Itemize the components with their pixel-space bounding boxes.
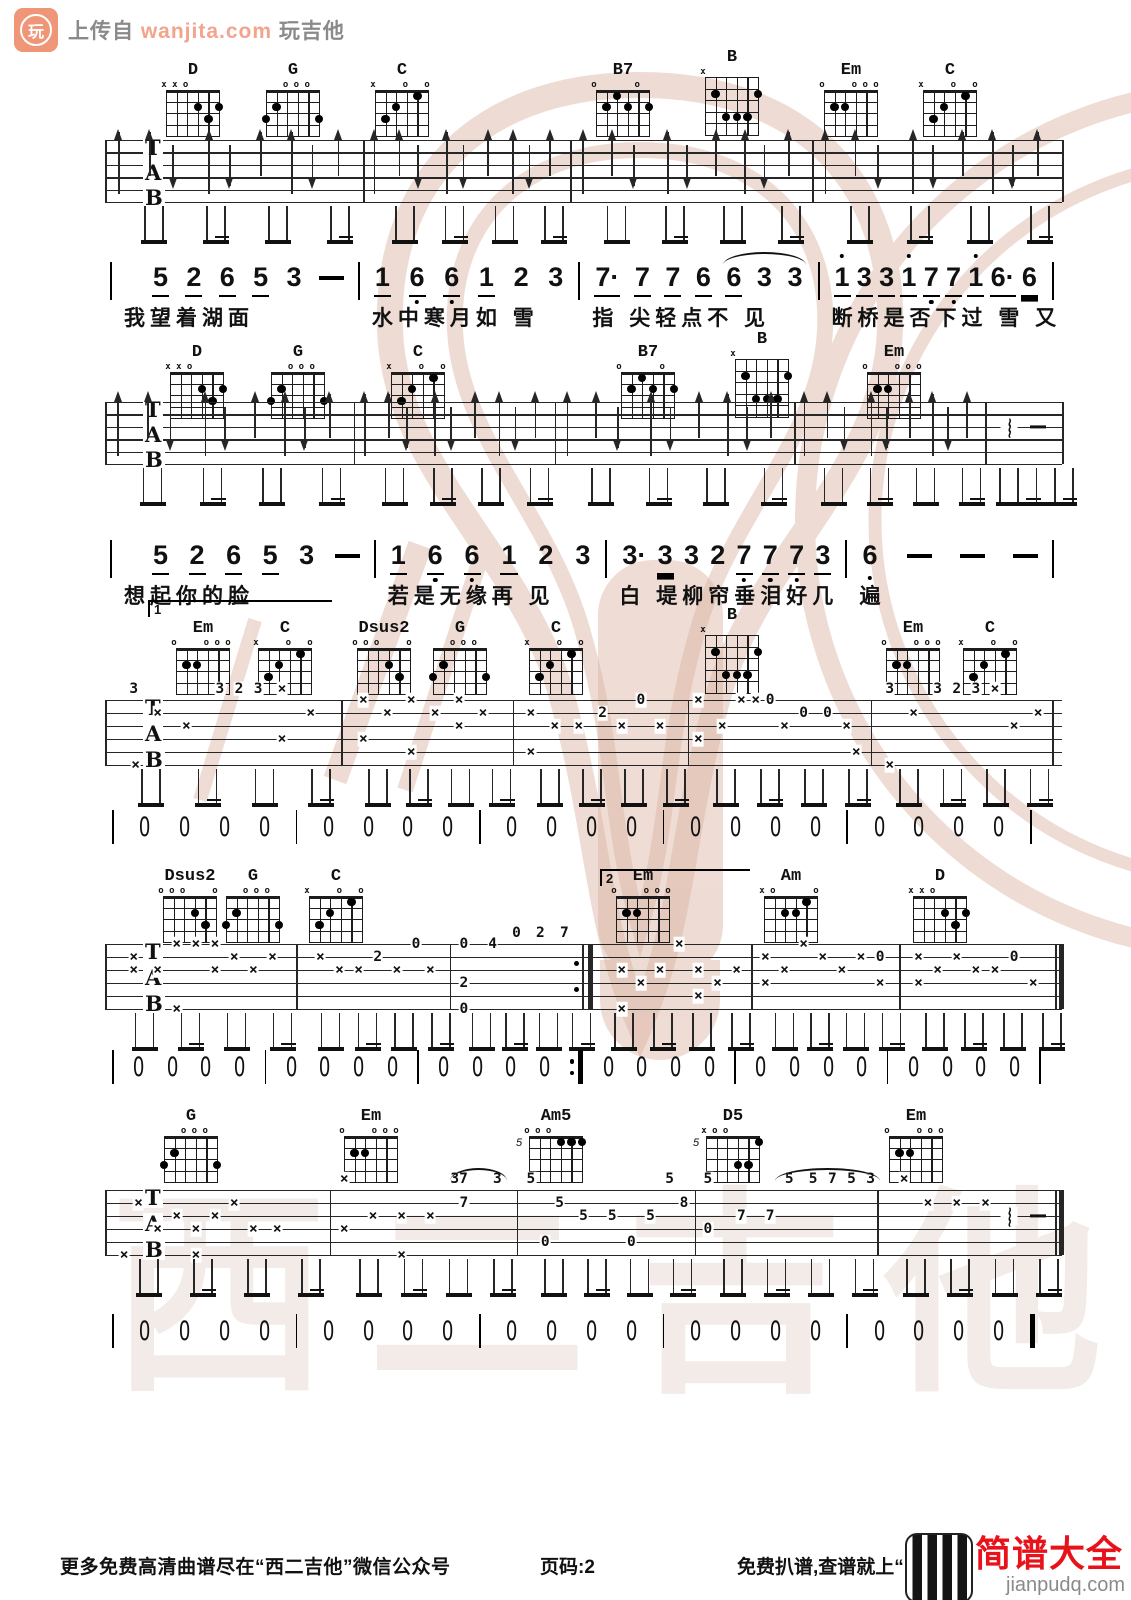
beam-group [406,769,432,807]
final-barline-thin [1055,1190,1057,1255]
upload-header: 玩 上传自 wanjita.com 玩吉他 [14,8,345,52]
marker-open: o [180,886,185,896]
strum-up-arrow [932,394,934,456]
beam-stem [493,1259,495,1297]
beam-stem [764,468,766,506]
chord-position-label: 5 [516,1137,522,1149]
zero-note: 0 [472,1054,484,1081]
marker-open: o [382,1126,387,1136]
marker-open: o [403,80,408,90]
marker-open: o [204,638,209,648]
beam-group [670,1259,696,1297]
chord-nut [391,372,445,375]
beam-stem [463,206,465,244]
beam-stem [782,468,784,506]
beam-stem [811,1259,813,1297]
beam-group [801,769,827,807]
chord-open-mute-markers: oooo [613,886,673,896]
chord-grid [764,896,818,942]
tab-glyph: 7 [736,1209,747,1224]
chord-fret-line [170,407,224,408]
marker-open: o [935,638,940,648]
jianpu-note: 2 [537,540,554,571]
chord-nut [705,635,759,636]
beam-halfbar [581,1043,595,1045]
beam-bar [757,803,783,807]
chord-name: G [430,620,490,638]
beam-bar [492,240,518,244]
zeros-group: 0000 [419,1054,570,1081]
beam-stem [206,206,208,244]
repeat-dot [574,987,579,992]
beam-stem [135,1013,137,1051]
repeat-dots [570,1059,575,1075]
beam-bar [764,1293,790,1297]
beam-group [604,206,630,244]
jianpu-note: 3 [878,262,895,297]
marker-open: o [471,638,476,648]
beam-stem [982,1013,984,1051]
chord-diagram-Em: Emoooo [864,344,924,418]
jianpu-note: 5 [262,540,279,575]
beam-group [224,1013,250,1051]
chord-grid [889,1136,943,1182]
tab-glyph: × [760,976,771,991]
beam-stem [868,206,870,244]
beam-group [1036,1259,1062,1297]
tab-glyph: × [980,1196,991,1211]
beam-bar [190,1293,216,1297]
marker-open: o [905,362,910,372]
beam-group [903,1259,929,1297]
marker-open: o [938,1126,943,1136]
beam-group [502,1013,528,1051]
zero-note: 0 [323,1318,335,1345]
barline [812,140,814,202]
chord-diagram-C: Cxoo [306,868,366,942]
beam-bar [244,1293,270,1297]
beam-stem [706,468,708,506]
beam-stem [291,1013,293,1051]
beam-stem [262,468,264,506]
barline [105,944,107,1009]
marker-mute: x [918,80,923,90]
chord-nut [706,1136,760,1139]
marker-mute: x [958,638,963,648]
beam-group [720,206,746,244]
chord-finger-dot [429,374,437,382]
beam-bar [265,240,291,244]
beam-group [764,1259,790,1297]
chord-fret-line [258,671,312,672]
tab-glyph: 0 [459,1002,470,1017]
chord-finger-dot [326,909,334,917]
chord-open-mute-markers: x [702,67,762,77]
beam-halfbar [681,1289,695,1291]
marker-open: o [440,362,445,372]
beam-stem [216,769,218,807]
barline [296,944,298,1009]
beam-bar [663,803,689,807]
beam-bar [967,240,993,244]
beam-group [265,206,291,244]
barline [513,700,515,765]
beam-stem [359,1259,361,1297]
marker-open: o [372,1126,377,1136]
tab-glyph: × [970,963,981,978]
beam-stem [141,769,143,807]
jianpu-note: 7 [945,262,962,297]
tab-glyph: × [353,963,364,978]
tab-clef-letter: T [143,1187,163,1208]
upload-prefix: 上传自 [68,20,134,43]
chord-finger-dot [272,103,280,111]
strum-up-arrow [499,394,501,456]
beam-bar [604,240,630,244]
chord-diagram-D: Dxxo [163,62,223,136]
beam-stem [964,1013,966,1051]
tab-glyph: × [750,693,761,708]
zero-note: 0 [179,1318,191,1345]
beam-halfbar [310,1289,324,1291]
zero-note: 0 [353,1054,365,1081]
strum-up-arrow [549,132,551,176]
chord-diagram-B: Bx [732,331,792,417]
chord-open-mute-markers: xxo [910,886,970,896]
tab-glyph: 0 [626,1235,637,1250]
beam-stem [505,1013,507,1051]
beam-halfbar [202,1289,216,1291]
beam-stem [829,1259,831,1297]
beam-group [1051,468,1077,506]
marker-open: o [304,80,309,90]
footer-left-text: 更多免费高清曲谱尽在“西二吉他”微信公众号 [60,1552,451,1579]
tab-glyph: × [851,745,862,760]
jianpu-measure: 6遍 [847,540,1052,571]
beam-halfbar [675,799,689,801]
chord-fret-line [344,1182,398,1183]
strum-up-arrow [611,132,613,176]
marker-open: o [192,1126,197,1136]
jianpu-measure: 52653想起你的脸 [112,540,374,575]
beam-bar [852,1293,878,1297]
barline [330,1190,332,1255]
beam-stem [609,468,611,506]
beam-bar [670,1293,696,1297]
beam-stem [386,769,388,807]
marker-open: o [264,886,269,896]
chord-grid [923,90,977,136]
beam-halfbar [440,1043,454,1045]
beam-stem [986,769,988,807]
barline [1062,402,1064,464]
marker-open: o [862,362,867,372]
jianpu-note: 6 [464,540,481,575]
tab-glyph: × [133,1196,144,1211]
strum-down-arrow [633,145,635,186]
tab-glyph: × [152,706,163,721]
beam-halfbar [538,498,552,500]
jianpu-note: 6 [725,262,742,297]
tab-glyph: × [779,963,790,978]
tab-glyph: × [191,937,202,952]
beam-stem [301,1259,303,1297]
chord-open-mute-markers: ooo [263,80,323,90]
chord-diagram-Dsus2: Dsus2oooo [160,868,220,942]
beam-group [140,468,166,506]
chord-fret-line [357,660,411,661]
beam-bar [903,1293,929,1297]
beam-stem [924,1259,926,1297]
beam-stem [492,769,494,807]
zero-note: 0 [219,1318,231,1345]
chord-fret-line [616,919,670,920]
tab-glyph: × [454,719,465,734]
jianpu-note: 6· [990,262,1016,297]
beam-group [772,1013,798,1051]
tab-glyph: 0 [540,1235,551,1250]
jianpu-note: 2 [513,262,530,293]
beam-halfbar [553,236,567,238]
marker-open: o [1012,638,1017,648]
beam-stem [548,468,550,506]
beam-bar [801,803,827,807]
marker-open: o [419,362,424,372]
chord-finger-dot [645,103,653,111]
chord-grid: 5 [529,1136,583,1182]
beam-stem [513,206,515,244]
final-barline-thin [1055,944,1057,1009]
beam-stem [625,206,627,244]
tab-glyph: × [478,706,489,721]
chord-finger-dot [557,1138,565,1146]
strum-down-arrow [947,407,949,448]
beam-stem [665,206,667,244]
staff-line [105,464,1062,465]
chord-open-mute-markers: oo [618,362,678,372]
marker-open: o [461,638,466,648]
chord-nut [164,1136,218,1139]
beam-stem [245,1013,247,1051]
beam-stem [255,769,257,807]
beam-stem [499,468,501,506]
chord-finger-dot [567,1138,575,1146]
marker-open: o [158,886,163,896]
barline [1052,700,1054,765]
jianpu-note: 3 [814,540,831,575]
chord-finger-dot [347,898,355,906]
tab-glyph: 2 [234,682,245,697]
marker-mute: x [701,1126,706,1136]
strum-down-arrow [463,145,465,186]
ending-bracket: 2 [600,869,750,886]
chord-open-mute-markers: ooo [526,1126,586,1136]
tab-glyph: 2 [372,950,383,965]
zero-note: 0 [873,1318,885,1345]
zero-note: 0 [856,1054,868,1081]
chord-nut [166,90,220,93]
chord-fret-line [357,671,411,672]
chord-nut [344,1136,398,1139]
staff-line [105,1242,1062,1243]
beam-stem [139,1259,141,1297]
beam-group [490,1259,516,1297]
chord-finger-dot [213,1161,221,1169]
tab-glyph: × [152,963,163,978]
chord-open-mute-markers: ooo [430,638,490,648]
chord-finger-dot [743,671,751,679]
beam-stem [590,1013,592,1051]
beam-stem [775,1013,777,1051]
chord-fret-line [706,1171,760,1172]
chord-nut [226,896,280,899]
marker-open: o [337,886,342,896]
chord-open-mute-markers: oooo [864,362,924,372]
chord-string-line [726,635,727,693]
marker-open: o [914,638,919,648]
zeros-group: 0000 [481,1318,663,1345]
site-link-text[interactable]: wanjita.com [141,20,272,43]
strum-up-arrow [727,394,729,456]
chord-finger-dot [711,648,719,656]
beam-bar [448,803,474,807]
strum-down-arrow [529,145,531,186]
beam-bar [778,240,804,244]
staff-line [105,402,1062,403]
chord-finger-dot [613,92,621,100]
chord-nut [170,372,224,375]
marker-mute: x [919,886,924,896]
beam-group [728,1013,754,1051]
beam-stem [900,1013,902,1051]
chord-fret-line [596,113,650,114]
tab-glyph: 5 [578,1209,589,1224]
zero-note: 0 [139,814,151,841]
beam-halfbar [970,498,984,500]
tab-glyph: 3 [253,682,264,697]
zero-note: 0 [506,814,518,841]
chord-diagram-Em: Emoooo [821,62,881,136]
beam-stem [144,206,146,244]
beam-stem [724,468,726,506]
repeat-dot [574,961,579,966]
chord-finger-dot [941,909,949,917]
beam-group [537,769,563,807]
jianpudaquan-logo[interactable]: 简谱大全 jianpudq.com [975,1536,1125,1598]
beam-bar [308,803,334,807]
tab-glyph: × [368,1209,379,1224]
marker-mute: x [161,80,166,90]
chord-finger-dot [841,103,849,111]
tab-glyph: × [913,976,924,991]
chord-nut [357,648,411,651]
chord-fret-line [705,670,759,671]
tab-glyph: × [841,719,852,734]
barline [555,402,557,464]
strum-down-arrow [746,407,748,448]
barline [570,140,572,202]
beam-stem [495,206,497,244]
tab-clef-letter: B [143,187,165,208]
beam-halfbar [189,1043,203,1045]
beam-stem [562,206,564,244]
strum-up-arrow [855,132,857,176]
chord-finger-dot [638,374,646,382]
chord-grid [596,90,650,136]
jianpu-note: 3 [683,540,700,571]
chord-nut [258,648,312,651]
marker-mute: x [759,886,764,896]
chord-fret-line [375,113,429,114]
chord-finger-dot [892,661,900,669]
beam-stem [199,1013,201,1051]
zero-note: 0 [975,1054,987,1081]
zeros-barline [1039,1050,1041,1084]
tab-glyph: × [267,950,278,965]
beam-bar [896,803,922,807]
tab-glyph: × [951,1196,962,1211]
chord-fret-line [705,112,759,113]
strum-up-arrow [388,394,390,438]
chord-string-line [767,359,768,417]
marker-open: o [884,1126,889,1136]
beam-halfbar [973,1043,987,1045]
jianpu-dash [335,554,360,558]
marker-open: o [578,638,583,648]
tab-glyph: × [229,1196,240,1211]
zero-note: 0 [285,1054,297,1081]
beam-stem [322,468,324,506]
jianpu-line: 52653我望着湖面166123水中寒月如 雪7·776633指 尖轻点不 见1… [110,262,1054,300]
strum-up-arrow [208,132,210,194]
chord-open-mute-markers: oooo [821,80,881,90]
marker-open: o [881,638,886,648]
tab-glyph: × [693,693,704,708]
chord-finger-dot [830,103,838,111]
chord-grid [357,648,411,694]
strum-down-arrow [1012,145,1014,186]
chord-open-mute-markers: oo [593,80,653,90]
jianpu-note: 7 [788,540,805,575]
barline [1062,140,1064,202]
lyrics-line: 若是无缘再 见 [388,580,606,610]
beam-group [703,468,729,506]
beam-group [1027,206,1053,244]
zero-note: 0 [166,1054,178,1081]
beam-stem [731,1013,733,1051]
chord-finger-dot [633,909,641,917]
beam-halfbar [418,799,432,801]
beam-bar [845,803,871,807]
chord-fret-line [529,683,583,684]
jianpu-note: 7· [594,262,620,297]
zero-note: 0 [258,1318,270,1345]
beam-stem [667,468,669,506]
beam-group [579,769,605,807]
chord-name: C [960,620,1020,638]
chord-open-mute-markers: oooo [341,1126,401,1136]
zero-note: 0 [586,814,598,841]
tab-glyph: × [573,719,584,734]
chord-string-line [705,635,706,693]
beam-bar [430,502,456,506]
strum-up-arrow [667,132,669,194]
chord-finger-dot [755,1138,763,1146]
chord-finger-dot [802,898,810,906]
tab-glyph: × [693,732,704,747]
chord-fret-line [886,671,940,672]
strum-down-arrow [450,407,452,448]
